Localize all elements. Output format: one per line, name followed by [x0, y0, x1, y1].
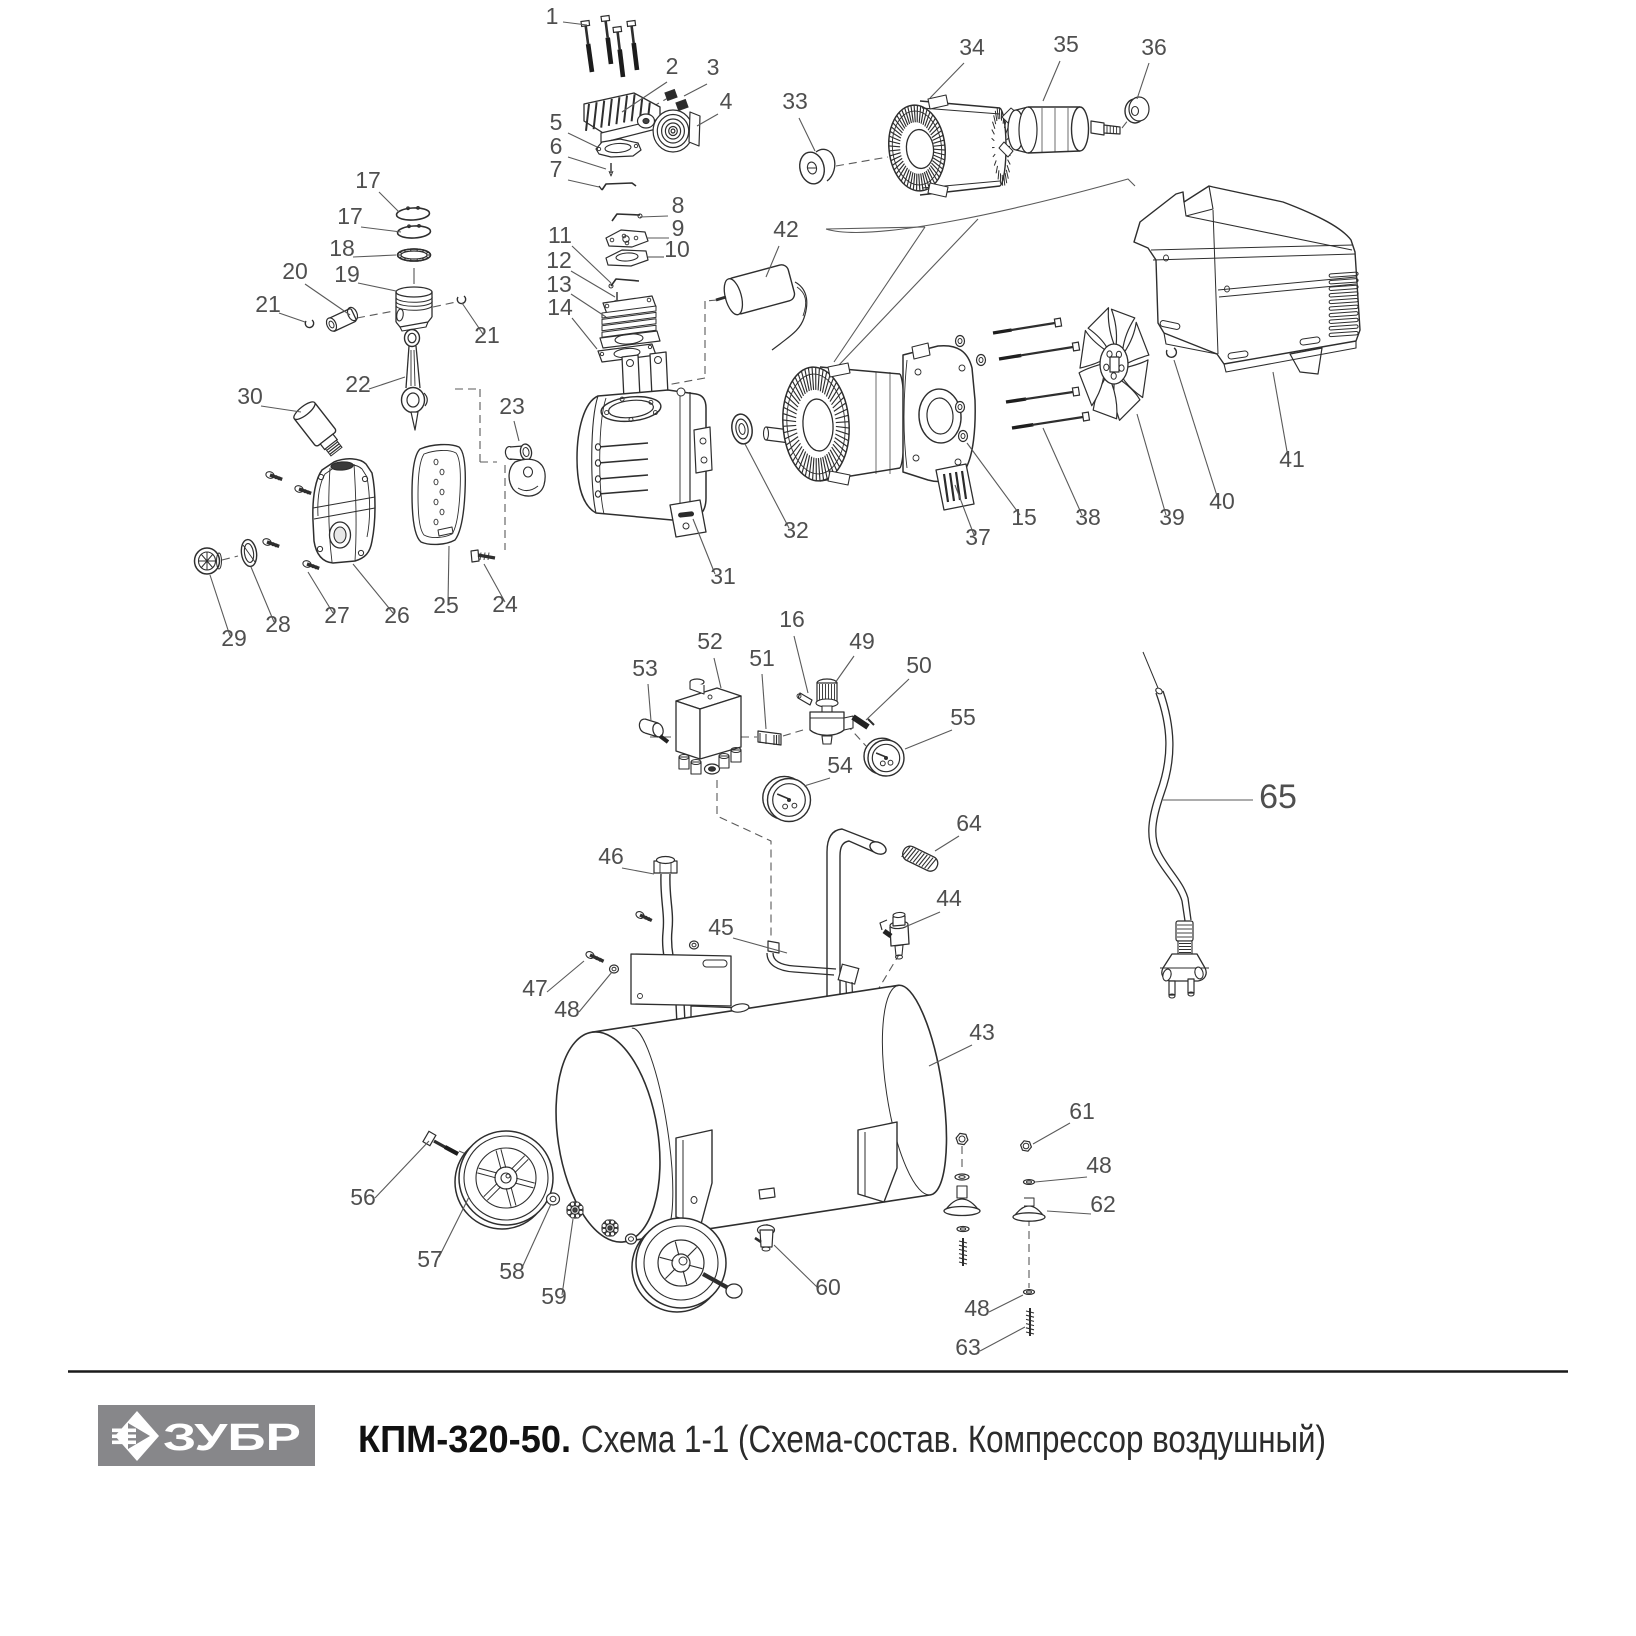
svg-text:18: 18 [329, 235, 355, 261]
svg-text:40: 40 [1209, 488, 1235, 514]
svg-text:61: 61 [1069, 1098, 1095, 1124]
svg-text:41: 41 [1279, 446, 1305, 472]
svg-text:36: 36 [1141, 34, 1167, 60]
svg-text:62: 62 [1090, 1191, 1116, 1217]
svg-text:21: 21 [255, 291, 281, 317]
svg-text:19: 19 [334, 261, 360, 287]
svg-text:27: 27 [324, 602, 350, 628]
svg-text:24: 24 [492, 591, 518, 617]
svg-text:15: 15 [1011, 504, 1037, 530]
svg-text:22: 22 [345, 371, 371, 397]
svg-text:44: 44 [936, 885, 962, 911]
svg-text:43: 43 [969, 1019, 995, 1045]
svg-text:56: 56 [350, 1184, 376, 1210]
svg-text:16: 16 [779, 606, 805, 632]
svg-text:11: 11 [548, 222, 572, 248]
svg-text:55: 55 [950, 704, 976, 730]
svg-text:57: 57 [417, 1246, 443, 1272]
svg-text:20: 20 [282, 258, 308, 284]
svg-text:14: 14 [547, 294, 573, 320]
svg-text:25: 25 [433, 592, 459, 618]
svg-text:29: 29 [221, 625, 247, 651]
svg-text:49: 49 [849, 628, 875, 654]
svg-text:58: 58 [499, 1258, 525, 1284]
svg-text:30: 30 [237, 383, 263, 409]
svg-text:Схема 1-1 (Схема-состав. Компр: Схема 1-1 (Схема-состав. Компрессор возд… [581, 1419, 1326, 1461]
svg-text:65: 65 [1259, 778, 1297, 816]
svg-text:52: 52 [697, 628, 723, 654]
svg-text:37: 37 [965, 524, 991, 550]
svg-text:21: 21 [474, 322, 500, 348]
svg-text:50: 50 [906, 652, 932, 678]
svg-text:64: 64 [956, 810, 982, 836]
svg-text:26: 26 [384, 602, 410, 628]
svg-text:32: 32 [783, 517, 809, 543]
svg-text:23: 23 [499, 393, 525, 419]
svg-text:63: 63 [955, 1334, 981, 1360]
svg-text:48: 48 [1086, 1152, 1112, 1178]
svg-text:33: 33 [782, 88, 808, 114]
svg-text:53: 53 [632, 655, 658, 681]
svg-text:38: 38 [1075, 504, 1101, 530]
svg-text:17: 17 [337, 203, 363, 229]
svg-text:1: 1 [546, 3, 559, 29]
svg-text:48: 48 [554, 996, 580, 1022]
svg-text:10: 10 [664, 236, 690, 262]
svg-text:48: 48 [964, 1295, 990, 1321]
svg-text:47: 47 [522, 975, 548, 1001]
svg-text:31: 31 [710, 563, 736, 589]
svg-text:ЗУБР: ЗУБР [163, 1417, 301, 1459]
svg-text:3: 3 [707, 54, 720, 80]
svg-text:45: 45 [708, 914, 734, 940]
svg-text:КПМ-320-50.: КПМ-320-50. [358, 1419, 571, 1461]
svg-text:5: 5 [550, 109, 563, 135]
svg-text:17: 17 [355, 167, 381, 193]
svg-text:7: 7 [550, 156, 563, 182]
svg-text:46: 46 [598, 843, 624, 869]
svg-text:59: 59 [541, 1283, 567, 1309]
svg-text:54: 54 [827, 752, 853, 778]
svg-text:39: 39 [1159, 504, 1185, 530]
svg-text:42: 42 [773, 216, 799, 242]
svg-text:28: 28 [265, 611, 291, 637]
svg-text:2: 2 [666, 53, 679, 79]
svg-text:12: 12 [546, 247, 572, 273]
svg-text:35: 35 [1053, 31, 1079, 57]
svg-text:4: 4 [720, 88, 733, 114]
svg-text:34: 34 [959, 34, 985, 60]
svg-text:51: 51 [749, 645, 775, 671]
svg-text:60: 60 [815, 1274, 841, 1300]
